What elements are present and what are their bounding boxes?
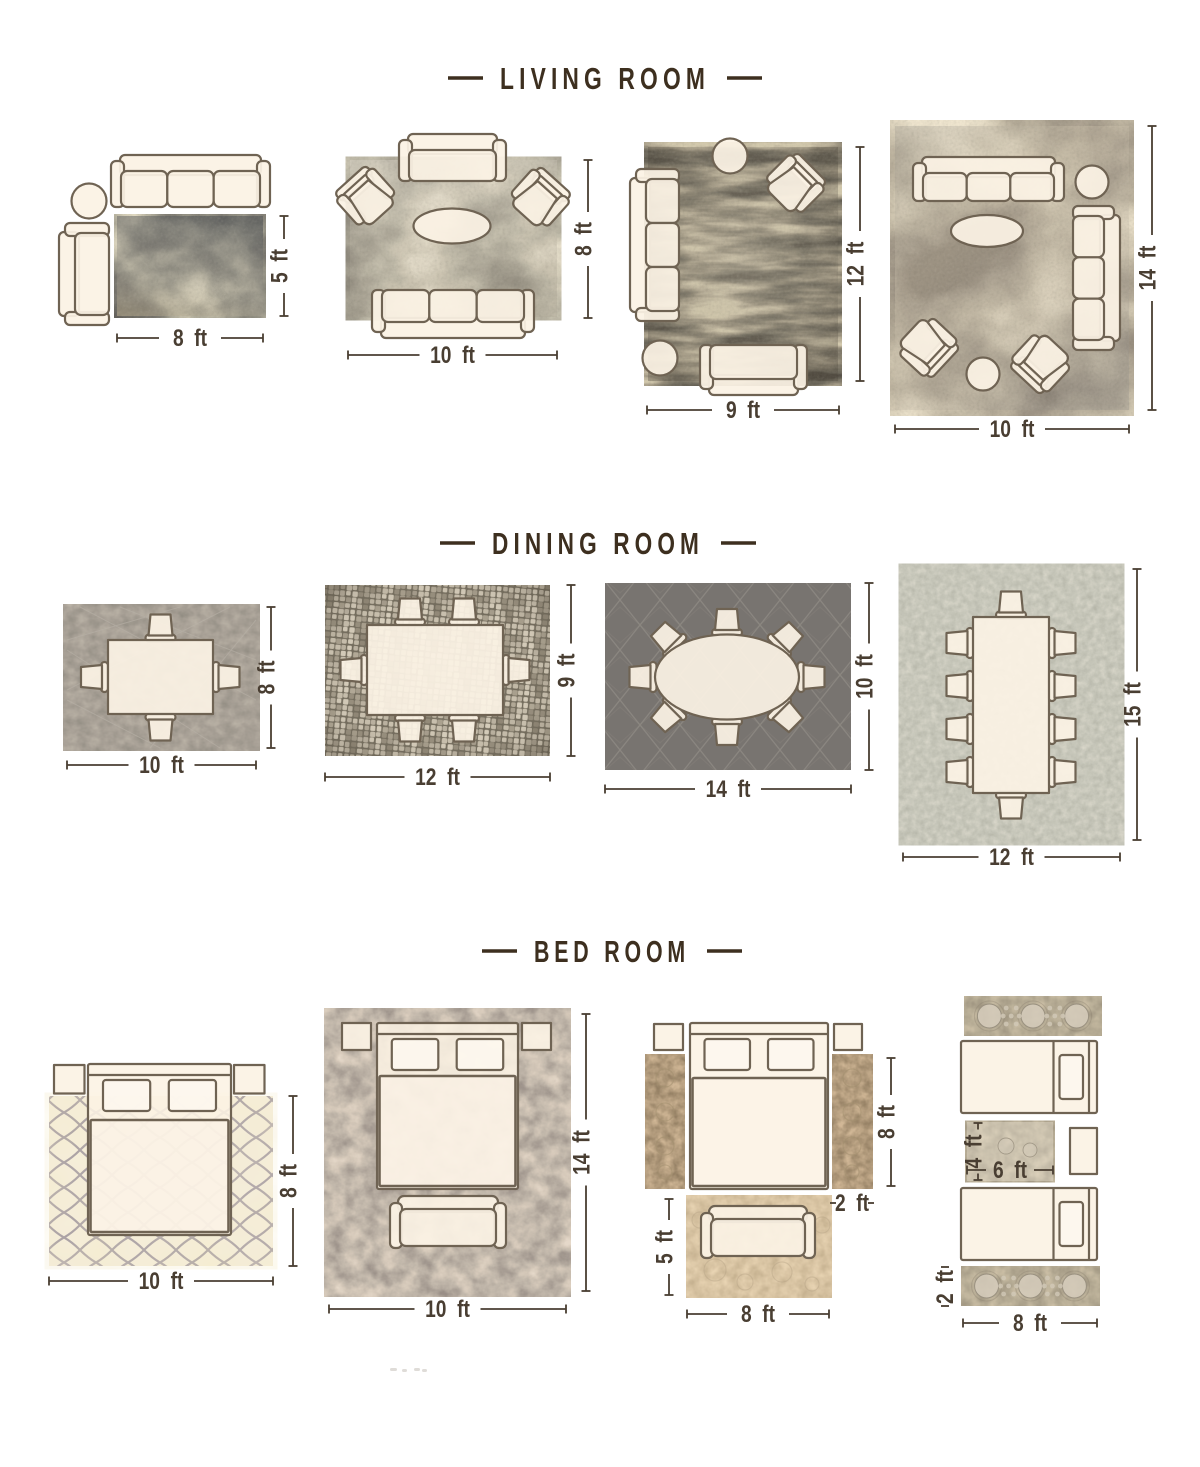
svg-text:6 ft: 6 ft [993,1156,1027,1184]
svg-text:2 ft: 2 ft [931,1270,959,1304]
svg-text:15 ft: 15 ft [1118,682,1146,727]
svg-text:9 ft: 9 ft [552,653,580,687]
svg-text:14 ft: 14 ft [567,1130,595,1175]
svg-text:4 ft: 4 ft [959,1134,987,1168]
svg-text:8 ft: 8 ft [1013,1309,1047,1337]
svg-text:12 ft: 12 ft [841,242,869,287]
svg-text:10 ft: 10 ft [139,751,184,779]
svg-text:14 ft: 14 ft [706,775,751,803]
svg-text:5 ft: 5 ft [650,1230,678,1264]
svg-text:10 ft: 10 ft [990,415,1035,443]
svg-text:8 ft: 8 ft [741,1300,775,1328]
svg-text:8 ft: 8 ft [252,660,280,694]
svg-text:BED ROOM: BED ROOM [534,934,690,969]
svg-text:8 ft: 8 ft [569,222,597,256]
svg-text:10 ft: 10 ft [425,1295,470,1323]
svg-text:12 ft: 12 ft [989,843,1034,871]
svg-text:9 ft: 9 ft [726,396,760,424]
svg-text:8 ft: 8 ft [274,1164,302,1198]
svg-text:14 ft: 14 ft [1133,246,1161,291]
svg-text:2 ft: 2 ft [835,1189,869,1217]
svg-text:8 ft: 8 ft [872,1105,900,1139]
svg-text:5 ft: 5 ft [265,249,293,283]
svg-text:10 ft: 10 ft [139,1267,184,1295]
svg-text:8 ft: 8 ft [173,324,207,352]
svg-text:10 ft: 10 ft [850,654,878,699]
svg-text:DINING ROOM: DINING ROOM [492,526,704,561]
svg-text:12 ft: 12 ft [415,763,460,791]
svg-text:LIVING ROOM: LIVING ROOM [500,61,710,96]
svg-text:10 ft: 10 ft [430,341,475,369]
